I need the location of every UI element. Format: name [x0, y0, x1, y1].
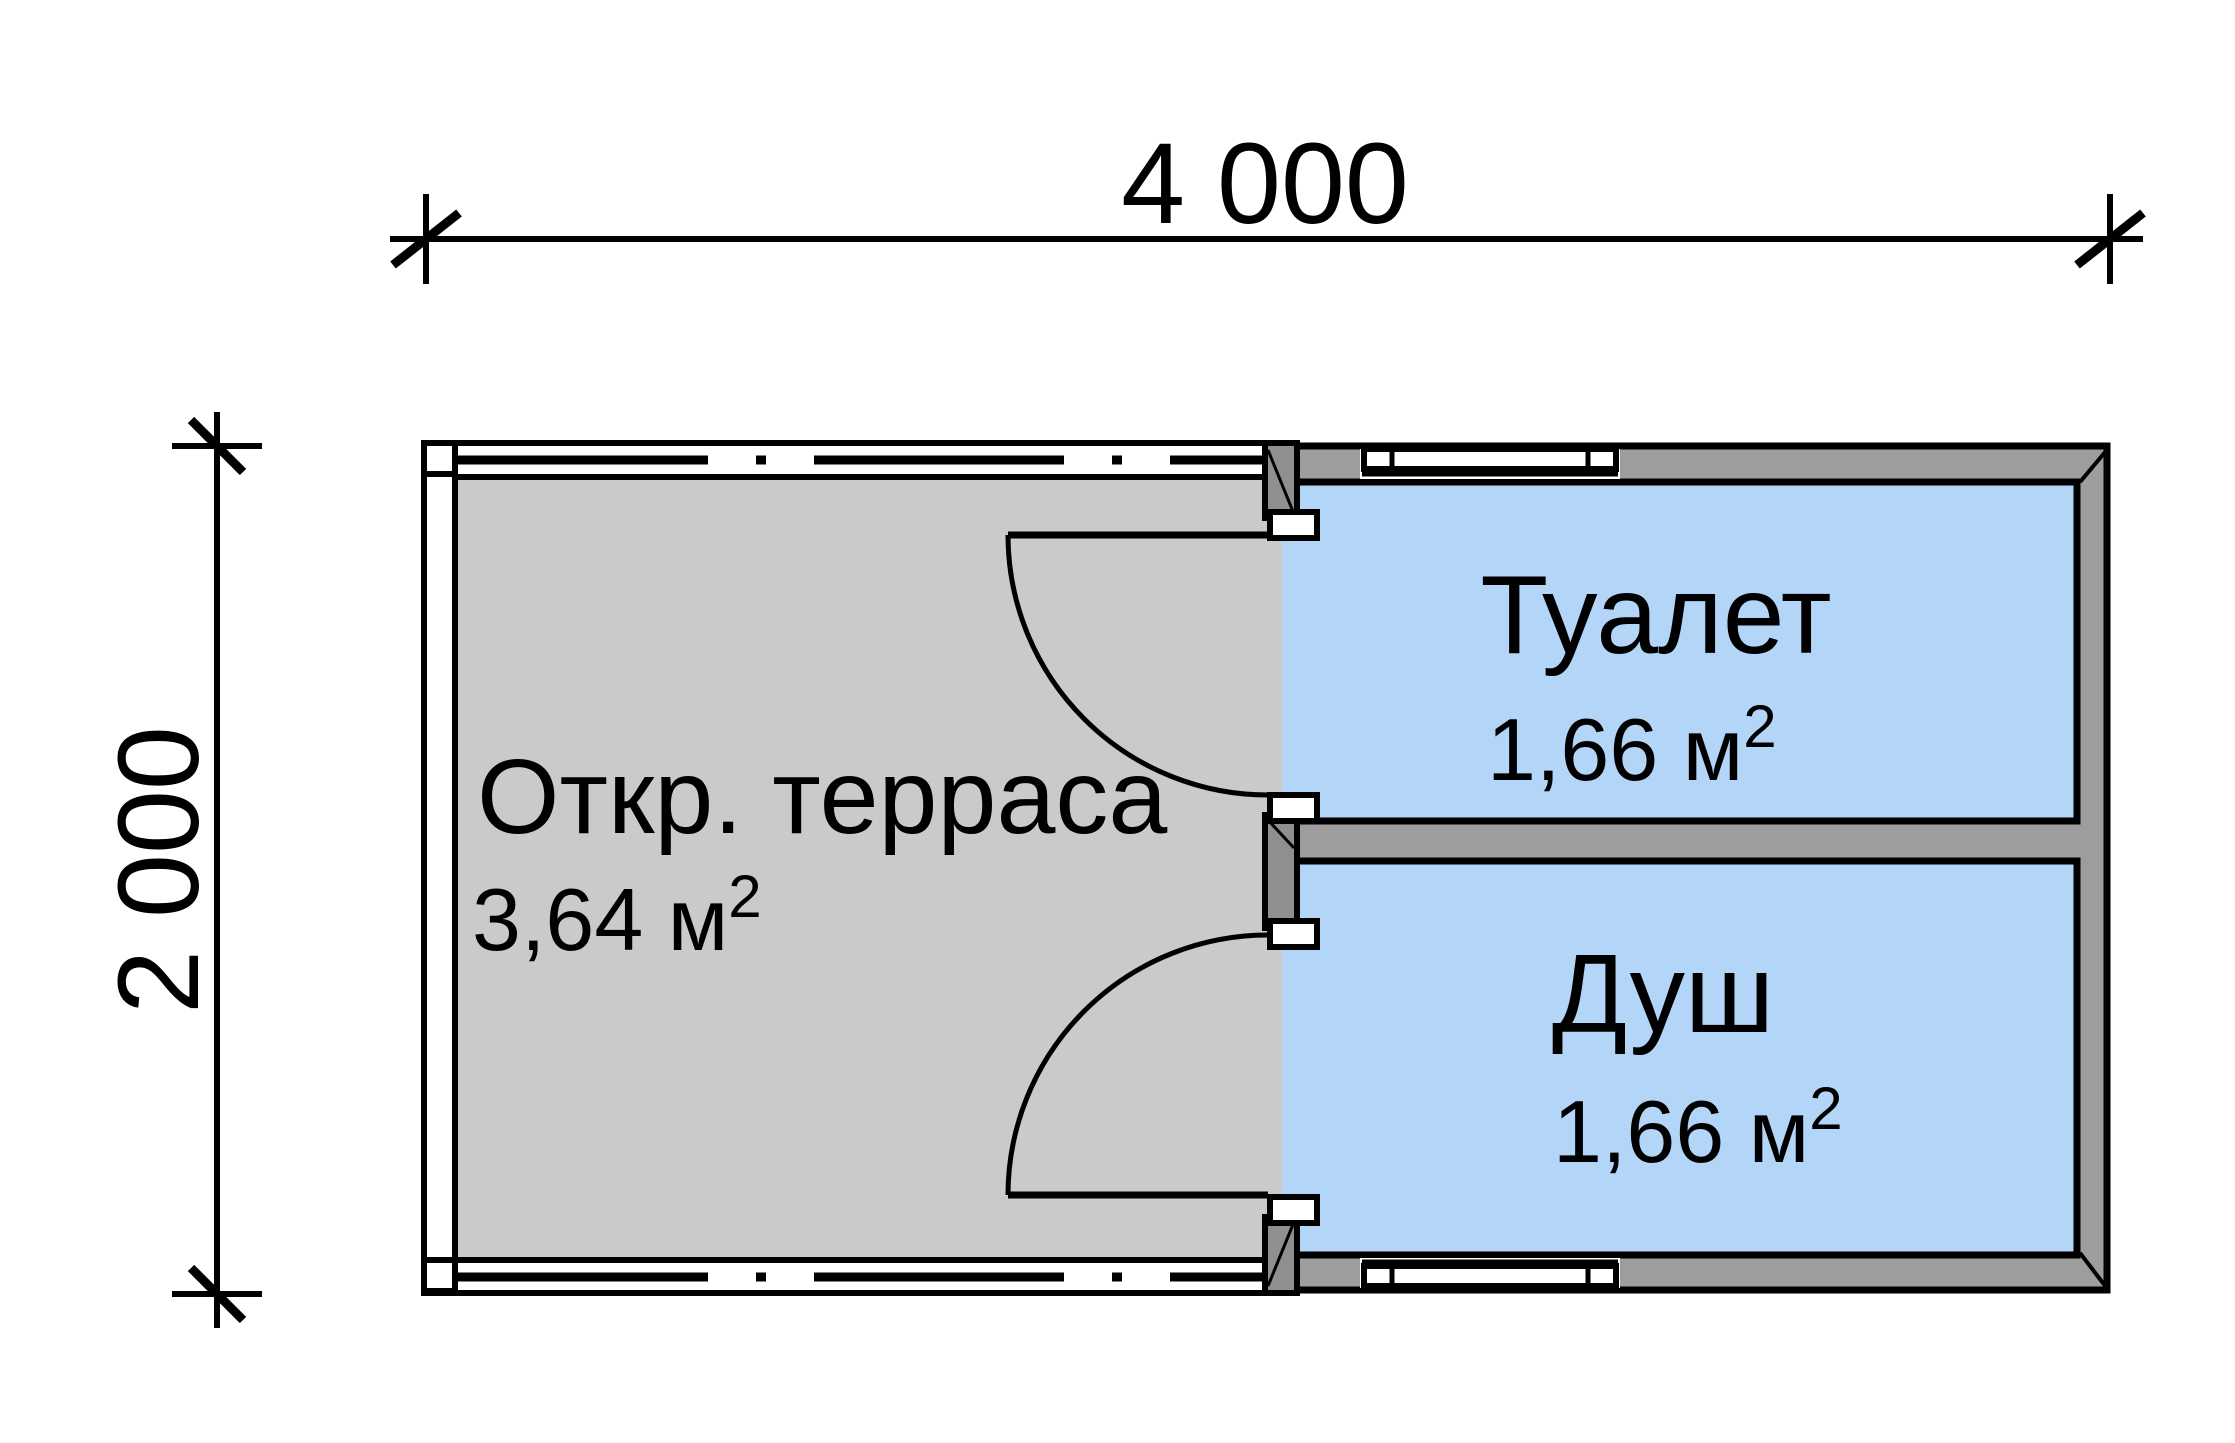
window-top: [1360, 448, 1620, 479]
door-jamb-shower-top: [1270, 921, 1317, 947]
room-shower: [1282, 858, 2080, 1258]
label-toilet-name: Туалет: [1480, 553, 1831, 677]
door-jamb-shower-bottom: [1270, 1197, 1317, 1223]
floor-plan-canvas: 4 000 2 000 Откр. терраса 3,64 м2 Туалет…: [0, 0, 2235, 1438]
dimension-width-label: 4 000: [1121, 120, 1409, 248]
terrace-floor: [424, 443, 1290, 1293]
railing-post-top-left: [424, 443, 455, 474]
label-shower-area-value: 1,66 м: [1553, 1082, 1809, 1181]
label-shower-area: 1,66 м2: [1553, 1075, 1843, 1181]
floor-plan-drawing: 4 000 2 000 Откр. терраса 3,64 м2 Туалет…: [0, 0, 2235, 1438]
label-terrace-area-sup: 2: [728, 863, 761, 930]
door-jamb-toilet-top: [1270, 512, 1317, 538]
label-toilet-area-sup: 2: [1743, 693, 1776, 760]
label-shower-name: Душ: [1552, 932, 1774, 1056]
window-top-glazing: [1364, 449, 1616, 469]
label-toilet-area: 1,66 м2: [1487, 693, 1777, 799]
railing-left: [424, 443, 455, 1293]
label-toilet-area-value: 1,66 м: [1487, 700, 1743, 799]
window-bottom-glazing: [1364, 1266, 1616, 1286]
door-jamb-toilet-bottom: [1270, 795, 1317, 821]
label-terrace-area: 3,64 м2: [472, 863, 762, 969]
label-terrace-area-value: 3,64 м: [472, 870, 728, 969]
dimension-height-label: 2 000: [95, 726, 223, 1014]
label-terrace-name: Откр. терраса: [477, 738, 1167, 856]
label-shower-area-sup: 2: [1809, 1075, 1842, 1142]
window-bottom: [1360, 1258, 1620, 1288]
railing-post-bottom-left: [424, 1260, 455, 1291]
